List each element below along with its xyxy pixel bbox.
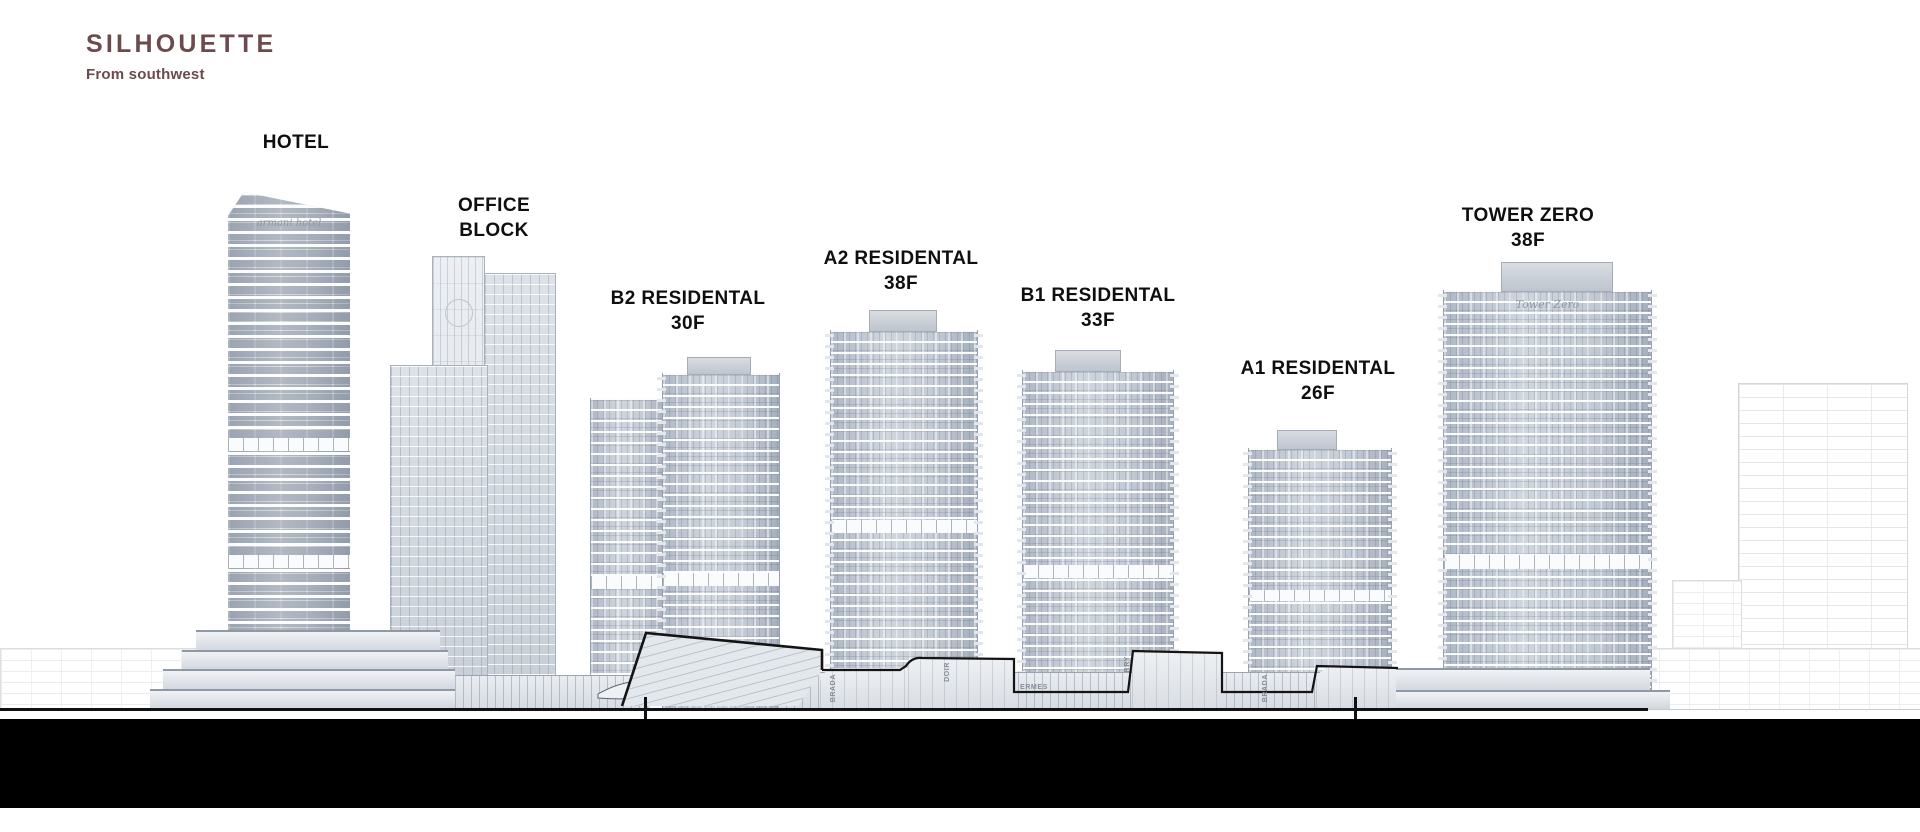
- basement-section-band: [0, 719, 1920, 808]
- retail-sign-brada-1: BRADA: [830, 674, 837, 702]
- label-a1-floors: 26F: [1241, 381, 1396, 406]
- page-title: SILHOUETTE: [86, 30, 276, 59]
- label-tower-zero: TOWER ZERO 38F: [1462, 203, 1594, 253]
- label-office-line2: BLOCK: [458, 218, 530, 243]
- retail-sign-doir: DOIR: [944, 662, 951, 682]
- section-tick-left: [644, 697, 647, 719]
- label-b1-residental: B1 RESIDENTAL 33F: [1021, 283, 1176, 333]
- retail-sign-rry: RRY: [1124, 656, 1131, 672]
- podium-roofline-outline: [822, 651, 1398, 692]
- section-tick-right: [1354, 697, 1357, 719]
- label-b2-residental: B2 RESIDENTAL 30F: [611, 286, 766, 336]
- retail-sign-brada-2: BRADA: [1262, 674, 1269, 702]
- label-office-line1: OFFICE: [458, 193, 530, 218]
- label-b1-line1: B1 RESIDENTAL: [1021, 283, 1176, 308]
- label-a2-line1: A2 RESIDENTAL: [824, 246, 979, 271]
- retail-sign-ermes: ERMES: [1020, 684, 1048, 691]
- label-hotel-line1: HOTEL: [263, 130, 329, 155]
- ground-line: [0, 708, 1648, 711]
- label-a1-residental: A1 RESIDENTAL 26F: [1241, 356, 1396, 406]
- label-b2-line1: B2 RESIDENTAL: [611, 286, 766, 311]
- label-b1-floors: 33F: [1021, 308, 1176, 333]
- page-subtitle: From southwest: [86, 66, 276, 83]
- label-tz-floors: 38F: [1462, 228, 1594, 253]
- label-office-block: OFFICE BLOCK: [458, 193, 530, 243]
- ground-line-light: [1648, 709, 1920, 710]
- label-tz-line1: TOWER ZERO: [1462, 203, 1594, 228]
- silhouette-elevation-page: SILHOUETTE From southwest HOTEL OFFICE B…: [0, 0, 1920, 832]
- header: SILHOUETTE From southwest: [86, 30, 276, 83]
- label-a1-line1: A1 RESIDENTAL: [1241, 356, 1396, 381]
- label-b2-floors: 30F: [611, 311, 766, 336]
- label-a2-floors: 38F: [824, 271, 979, 296]
- label-hotel: HOTEL: [263, 130, 329, 155]
- label-a2-residental: A2 RESIDENTAL 38F: [824, 246, 979, 296]
- canopy-glass: [622, 633, 822, 706]
